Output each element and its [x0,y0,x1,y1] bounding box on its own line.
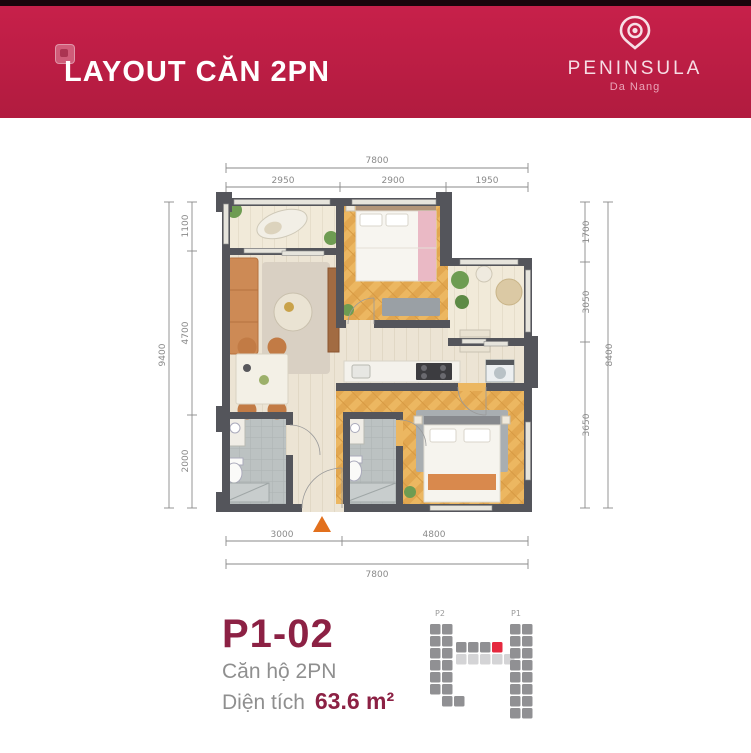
page: LAYOUT CĂN 2PN PENINSULA Da Nang [0,0,751,753]
dim-label: 1700 [582,220,592,243]
page-title: LAYOUT CĂN 2PN [64,56,330,89]
window [234,200,330,205]
dim-label: 7800 [366,156,389,166]
site-plan: P2 P1 [424,604,549,749]
dining-plant [259,375,269,385]
window [526,422,531,480]
coffee-table [274,293,312,331]
bath2-sink [351,424,360,433]
window [224,204,229,244]
sliding-door [462,339,486,344]
dim-label: 4800 [423,530,446,540]
bed1-pink-blanket [418,211,436,281]
bed1-console [382,298,440,316]
highlighted-unit-cell [492,642,503,653]
dim-label: 3650 [582,413,592,436]
unit-type: Căn hộ 2PN [222,660,336,684]
balcony-table [476,266,492,282]
sliding-door [484,342,508,347]
unit-area: Diện tích63.6 m² [222,688,394,715]
brand-subtitle: Da Nang [565,81,705,93]
plant-icon [455,295,469,309]
entrance-arrow-icon [313,516,331,532]
unit-area-value: 63.6 m² [315,688,394,714]
table-decor [284,302,294,312]
dining-decor [243,364,251,372]
bed2-pillow [464,429,490,442]
dim-label: 2000 [181,449,191,472]
floor-plan: 7800 2950 2900 1950 3000 4800 7800 1100 … [130,140,630,595]
bed2-side-table [502,416,510,424]
bath1-sink [230,423,240,433]
window [430,506,492,511]
dim-label: 3050 [582,290,592,313]
washer-door [494,367,506,379]
bath1-door-opening [286,425,293,455]
dim-label: 7800 [366,570,389,580]
sliding-door [244,249,286,254]
unit-area-label: Diện tích [222,691,305,714]
plant-icon [324,231,338,245]
bed1-pillow [386,214,408,226]
bed2-pillow [430,429,456,442]
tower-label-p1: P1 [511,609,521,618]
dim-label: 1950 [476,176,499,186]
header-bar: LAYOUT CĂN 2PN PENINSULA Da Nang [0,6,751,118]
bed2-orange-throw [428,474,496,490]
bed2-headboard [424,416,500,425]
dim-label: 4700 [181,321,191,344]
plant-icon [404,486,416,498]
dim-label: 1100 [181,214,191,237]
plant-icon [451,271,469,289]
unit-code: P1-02 [222,612,334,657]
window [352,200,436,205]
dim-label: 2900 [382,176,405,186]
kitchen-sink [352,365,370,378]
site-cells [430,624,533,719]
window [526,270,531,332]
peninsula-logo-icon [617,14,653,56]
dim-label: 8400 [605,343,615,366]
bedroom1-door-opening [346,320,374,328]
bedroom2-door-opening [458,383,486,391]
window [460,260,518,265]
bath2-door-opening [396,420,403,446]
bed1-pillow [360,214,382,226]
dim-label: 2950 [272,176,295,186]
brand-block: PENINSULA Da Nang [565,14,705,93]
bed2-side-table [414,416,422,424]
brand-name: PENINSULA [565,58,705,80]
sliding-door [282,251,324,256]
bean-bag [496,279,522,305]
dim-label: 9400 [158,343,168,366]
entry-opening [302,504,344,512]
tower-label-p2: P2 [435,609,445,618]
dim-label: 3000 [271,530,294,540]
